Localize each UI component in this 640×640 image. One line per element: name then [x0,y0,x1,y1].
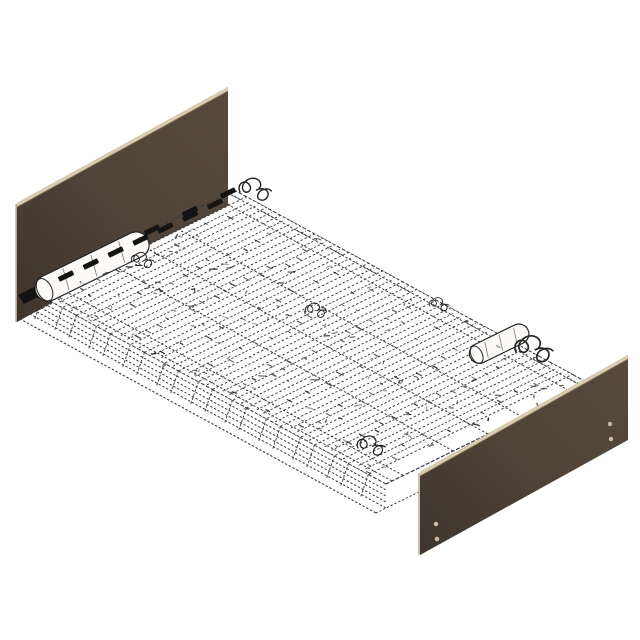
noise-mark [230,392,237,393]
noise-mark [457,401,458,404]
noise-mark [252,388,254,389]
screw-hole [433,521,438,526]
noise-mark [246,291,247,293]
noise-mark [401,322,404,324]
side-face-tick [88,326,96,349]
noise-mark [404,304,405,306]
noise-mark [154,293,156,294]
screw-hole [434,536,439,541]
noise-mark [191,326,195,327]
noise-mark [267,317,268,320]
bed-frame-drawing [0,0,640,640]
side-face-tick [272,426,280,449]
screw-hole [607,421,612,426]
noise-mark [89,295,91,297]
noise-mark [411,299,412,300]
noise-mark [286,315,289,316]
noise-mark [473,424,480,426]
side-face-tick [102,334,110,357]
noise-mark [250,357,252,358]
noise-mark [126,267,131,268]
noise-mark [288,380,289,381]
side-face-tick [54,308,62,331]
noise-mark [183,248,185,249]
noise-mark [534,362,535,363]
noise-mark [323,324,326,326]
side-face-tick [360,474,368,497]
noise-mark [227,266,234,268]
noise-mark [191,289,194,290]
gap-support-line [207,287,407,385]
noise-mark [307,408,313,409]
noise-mark [385,329,390,331]
technical-drawing-canvas [0,0,640,640]
noise-mark [339,418,342,419]
noise-mark [426,407,427,409]
gap-support-line [241,305,441,403]
noise-mark [176,342,178,343]
noise-mark [356,310,358,311]
noise-mark [368,376,369,379]
noise-mark [404,432,408,434]
noise-mark [533,357,534,359]
screw-hole [608,436,613,441]
noise-mark [488,418,489,420]
noise-mark [350,337,354,338]
noise-mark [429,445,433,447]
noise-mark [199,370,200,372]
noise-mark [252,324,257,325]
side-face-tick [224,400,232,423]
